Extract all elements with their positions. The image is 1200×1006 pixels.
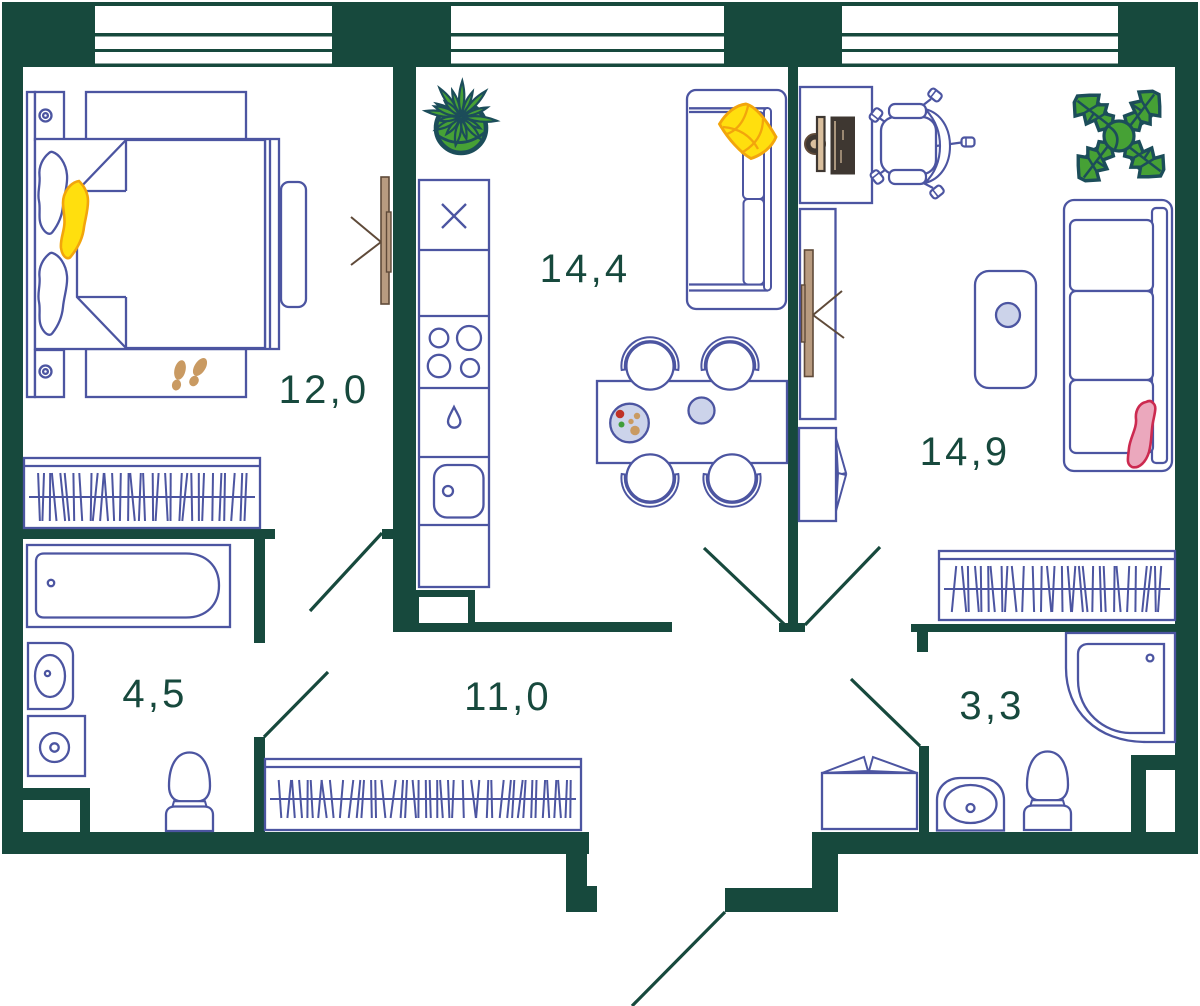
svg-text:3,3: 3,3 [959, 684, 1024, 728]
svg-text:11,0: 11,0 [464, 675, 552, 719]
svg-text:12,0: 12,0 [279, 368, 370, 412]
svg-text:14,4: 14,4 [540, 247, 631, 291]
svg-text:14,9: 14,9 [920, 430, 1011, 474]
svg-text:4,5: 4,5 [122, 672, 187, 716]
